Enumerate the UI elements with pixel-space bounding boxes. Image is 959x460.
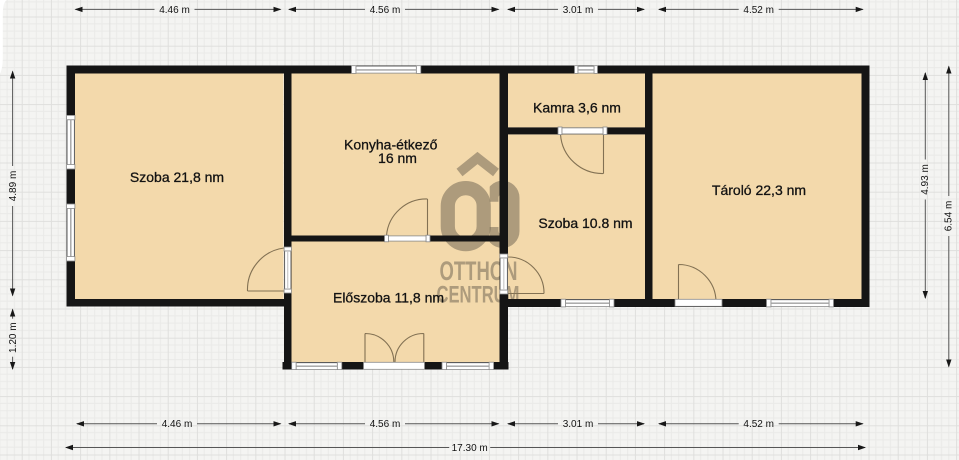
svg-text:3.01 m: 3.01 m (563, 5, 594, 16)
svg-text:Szoba 10.8 nm: Szoba 10.8 nm (538, 215, 632, 231)
svg-text:4.52 m: 4.52 m (743, 419, 774, 430)
svg-text:16 nm: 16 nm (378, 150, 417, 166)
svg-text:4.46 m: 4.46 m (162, 419, 193, 430)
svg-text:Kamra 3,6 nm: Kamra 3,6 nm (533, 100, 621, 116)
svg-text:4.56 m: 4.56 m (370, 5, 401, 16)
svg-text:Előszoba 11,8 nm: Előszoba 11,8 nm (333, 290, 444, 306)
svg-text:17.30 m: 17.30 m (452, 443, 488, 454)
svg-text:4.89 m: 4.89 m (8, 171, 19, 202)
svg-text:4.46 m: 4.46 m (159, 5, 190, 16)
svg-text:Szoba 21,8 nm: Szoba 21,8 nm (130, 169, 224, 185)
svg-text:4.56 m: 4.56 m (370, 419, 401, 430)
svg-text:3.01 m: 3.01 m (563, 419, 594, 430)
svg-text:4.52 m: 4.52 m (743, 5, 774, 16)
svg-text:6.54 m: 6.54 m (944, 201, 955, 232)
svg-text:4.93 m: 4.93 m (920, 164, 931, 195)
svg-text:1.20 m: 1.20 m (8, 322, 19, 353)
svg-text:Tároló 22,3 nm: Tároló 22,3 nm (712, 182, 806, 198)
